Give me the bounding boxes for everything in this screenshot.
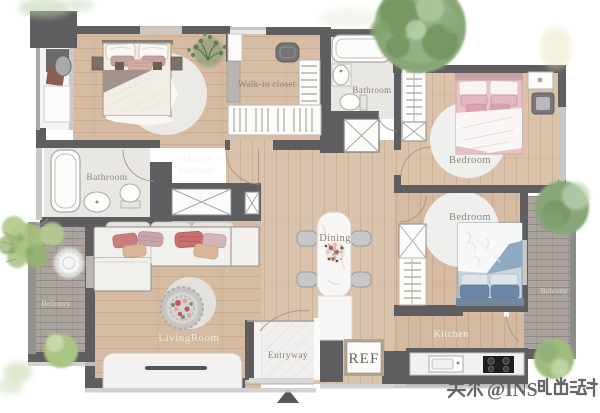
svg-text:Belcony: Belcony: [41, 299, 70, 308]
svg-text:Entryway: Entryway: [268, 351, 308, 361]
svg-text:Kitchen: Kitchen: [433, 329, 468, 340]
svg-text:badroom: badroom: [179, 166, 216, 176]
svg-text:Belcony: Belcony: [540, 286, 567, 295]
svg-text:Bathroom: Bathroom: [86, 173, 127, 183]
svg-text:LivingRoom: LivingRoom: [158, 332, 219, 344]
svg-text:REF: REF: [348, 351, 379, 367]
svg-text:Dining: Dining: [319, 233, 351, 244]
svg-text:@INS: @INS: [487, 380, 538, 401]
svg-text:Bedroom: Bedroom: [449, 155, 491, 166]
svg-text:Walk-in closet: Walk-in closet: [238, 79, 296, 89]
svg-text:Bedroom: Bedroom: [449, 212, 491, 223]
svg-text:Bathroom: Bathroom: [352, 85, 391, 95]
svg-text:Master: Master: [183, 155, 212, 165]
